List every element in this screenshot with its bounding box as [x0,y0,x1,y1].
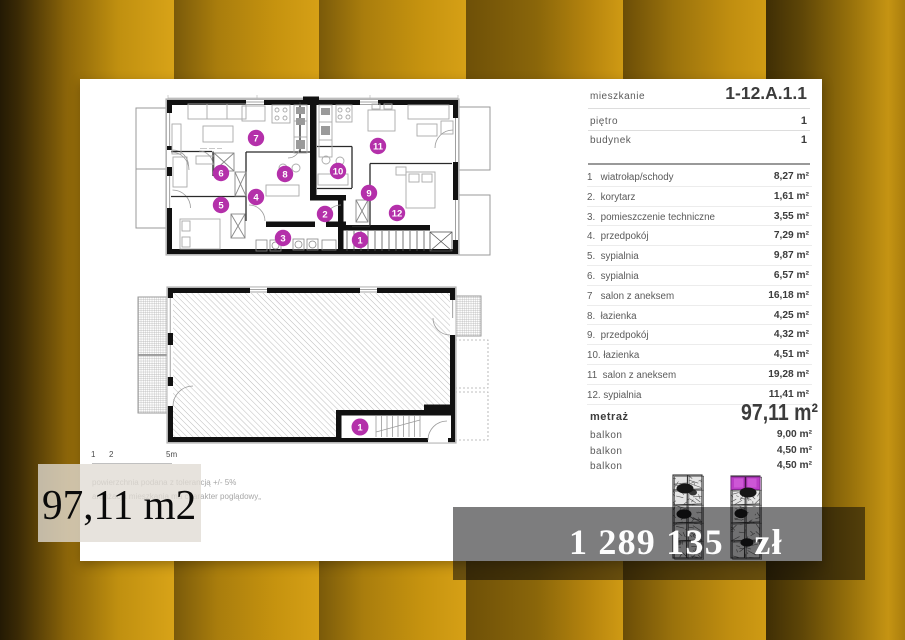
svg-text:7: 7 [253,134,258,145]
svg-text:6: 6 [218,169,223,180]
svg-text:9: 9 [366,189,371,200]
svg-text:10: 10 [333,167,344,178]
svg-text:2: 2 [322,210,327,221]
svg-text:11: 11 [373,142,384,153]
svg-text:1: 1 [357,423,363,434]
svg-text:5: 5 [218,201,224,212]
svg-text:8: 8 [282,170,287,181]
svg-text:1: 1 [357,236,363,247]
svg-text:4: 4 [253,193,259,204]
svg-text:3: 3 [280,234,285,245]
svg-text:12: 12 [392,209,403,220]
